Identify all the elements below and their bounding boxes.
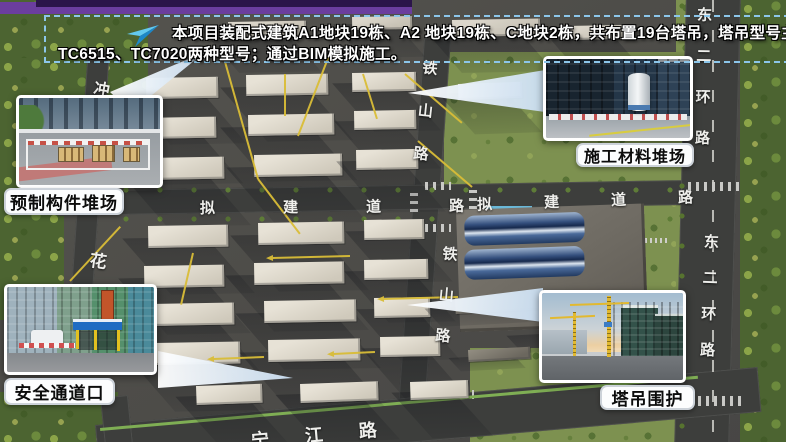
building-block [258,221,344,244]
precast-yard-photo [16,95,163,188]
building-block [364,219,424,240]
material-yard-label: 施工材料堆场 [576,143,694,167]
precast-yard-label: 预制构件堆场 [4,188,124,215]
tower-crane-mast [607,296,611,357]
building-block [380,336,440,357]
building-block [268,338,360,362]
crane-enclosure-photo [539,290,686,383]
building-block [150,303,234,326]
building-block [264,299,356,323]
road-label-tieshan-south: 铁 山 路 [435,243,459,347]
material-yard-photo [543,56,693,141]
banner-text-line1: 本项目装配式建筑A1地块19栋、A2 地块19栋、C地块2栋，共布置19台塔吊，… [172,21,786,43]
building-block [148,225,228,248]
site-fence [549,114,687,120]
building-block [254,261,344,285]
building-block [196,384,263,405]
building-block [356,149,418,170]
road-marking [688,182,740,191]
road-marking [425,224,451,232]
road-label-hua: 花 [88,246,108,273]
safety-canopy [73,319,122,330]
road-label-proposed-west: 拟 建 道 路 [200,195,464,218]
building-block [254,153,342,177]
banner-text-line2: TC6515、TC7020两种型号；通过BIM模拟施工。 [58,42,407,64]
building-block [248,113,334,135]
building-block [464,246,585,280]
road-marking [712,0,714,442]
building-block [458,82,523,100]
safety-entrance-photo [4,284,157,375]
arrowhead-icon [266,255,273,261]
crane-leader-line [284,74,286,116]
building-block [154,341,240,364]
info-banner: 本项目装配式建筑A1地块19栋、A2 地块19栋、C地块2栋，共布置19台塔吊，… [44,15,786,63]
site-overview-map: 铁 山 路 铁 山 路 拟 建 道 路 拟 建 道 路 东 二 环 路 东 二 … [0,0,786,442]
arrowhead-icon [377,296,384,302]
dark-accent-bar [36,0,412,7]
building-block [464,212,585,246]
crane-enclosure-label: 塔吊围护 [600,385,695,410]
building-block [300,381,379,403]
building-block [410,380,469,400]
arrowhead-icon [327,351,334,357]
building-block [354,110,416,130]
arrowhead-icon [207,356,214,362]
tower-crane-mast [573,312,576,356]
safety-entrance-label: 安全通道口 [4,378,115,405]
tent [31,330,63,344]
building-block [364,259,428,280]
road-marking [690,396,742,406]
